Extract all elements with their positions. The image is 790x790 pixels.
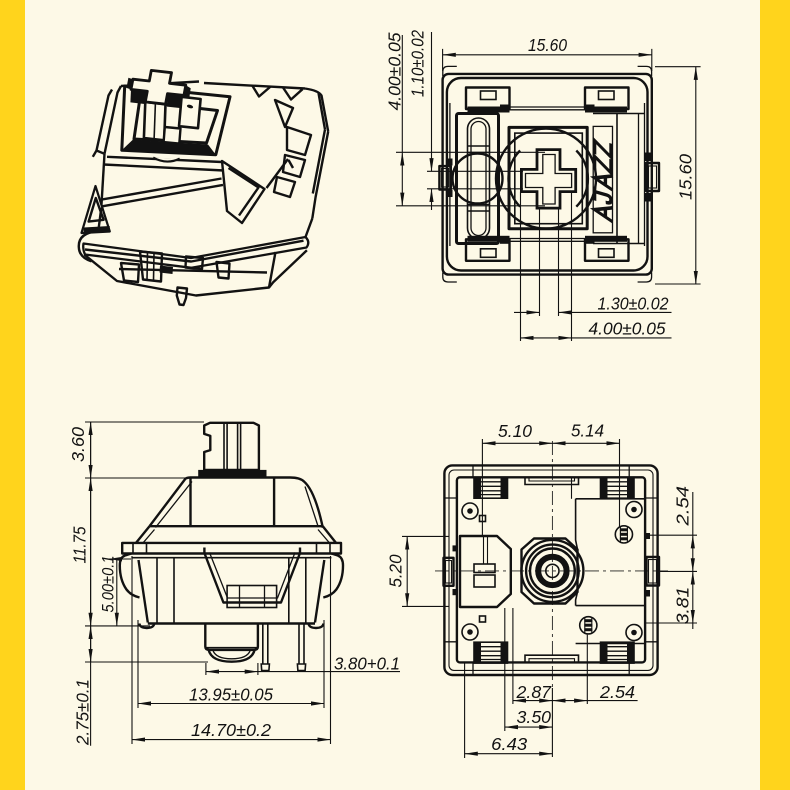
svg-text:4.00±0.05: 4.00±0.05 — [589, 318, 666, 338]
svg-text:2.87: 2.87 — [516, 682, 553, 702]
svg-text:1.30±0.02: 1.30±0.02 — [598, 293, 669, 313]
svg-text:2.75±0.1: 2.75±0.1 — [73, 679, 93, 746]
svg-text:3.80+0.1: 3.80+0.1 — [334, 654, 400, 674]
svg-text:4.00±0.05: 4.00±0.05 — [385, 32, 405, 110]
svg-text:3.50: 3.50 — [517, 707, 552, 727]
svg-text:2.54: 2.54 — [599, 682, 635, 702]
svg-text:5.14: 5.14 — [571, 421, 604, 441]
svg-text:6.43: 6.43 — [491, 734, 527, 754]
svg-text:15.60: 15.60 — [528, 35, 567, 55]
svg-text:11.75: 11.75 — [70, 526, 90, 563]
svg-text:1.10±0.02: 1.10±0.02 — [408, 30, 428, 97]
svg-text:13.95±0.05: 13.95±0.05 — [189, 685, 273, 705]
svg-text:5.20: 5.20 — [386, 554, 406, 587]
svg-text:5.00±0.1: 5.00±0.1 — [100, 556, 118, 613]
svg-text:5.10: 5.10 — [498, 421, 532, 441]
svg-text:3.60: 3.60 — [68, 427, 88, 462]
svg-text:15.60: 15.60 — [676, 154, 696, 200]
svg-text:14.70±0.2: 14.70±0.2 — [191, 720, 271, 740]
svg-text:3.81: 3.81 — [673, 587, 693, 625]
svg-text:2.54: 2.54 — [673, 486, 693, 527]
